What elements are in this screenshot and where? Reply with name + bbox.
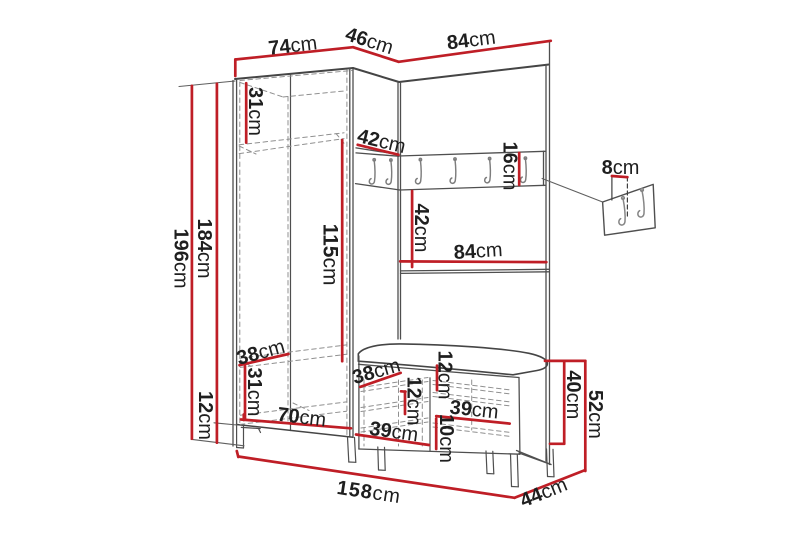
svg-text:12cm: 12cm <box>403 377 425 426</box>
svg-text:42cm: 42cm <box>410 204 432 253</box>
svg-text:31cm: 31cm <box>244 87 266 136</box>
svg-text:10cm: 10cm <box>435 414 457 463</box>
svg-text:12cm: 12cm <box>194 391 216 440</box>
svg-text:184cm: 184cm <box>193 218 215 278</box>
svg-text:52cm: 52cm <box>584 390 606 439</box>
svg-text:8cm: 8cm <box>602 157 640 179</box>
svg-text:115cm: 115cm <box>319 224 342 286</box>
svg-text:31cm: 31cm <box>243 368 265 417</box>
svg-text:196cm: 196cm <box>170 228 192 288</box>
svg-text:40cm: 40cm <box>562 370 584 419</box>
svg-text:12cm: 12cm <box>434 351 456 400</box>
svg-text:84cm: 84cm <box>453 239 503 264</box>
svg-text:16cm: 16cm <box>498 142 520 191</box>
